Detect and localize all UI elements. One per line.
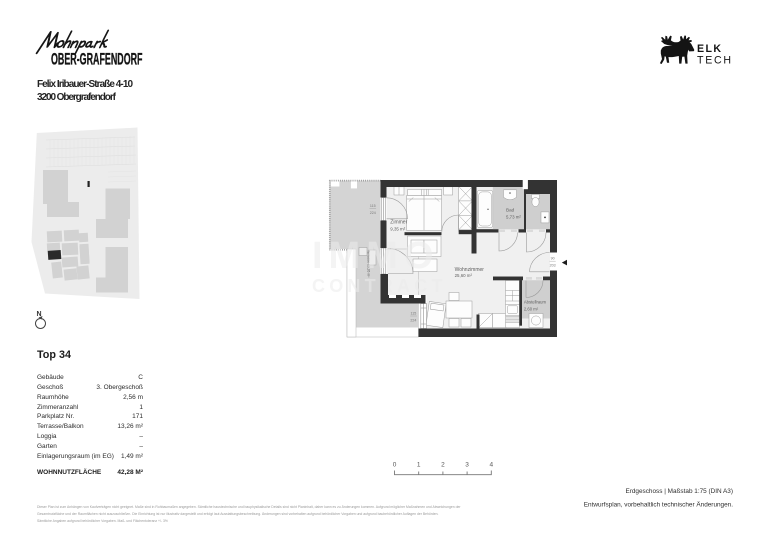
svg-text:Entwurfsplan, vorbehaltlich te: Entwurfsplan, vorbehaltlich technischer … (584, 501, 733, 509)
svg-text:4: 4 (489, 462, 493, 469)
svg-text:Erdgeschoss | Maßstab 1:75 (DI: Erdgeschoss | Maßstab 1:75 (DIN A3) (625, 488, 733, 495)
svg-text:0: 0 (393, 462, 397, 469)
svg-text:1: 1 (417, 462, 421, 469)
svg-text:2: 2 (441, 462, 445, 469)
svg-text:3: 3 (465, 462, 469, 469)
